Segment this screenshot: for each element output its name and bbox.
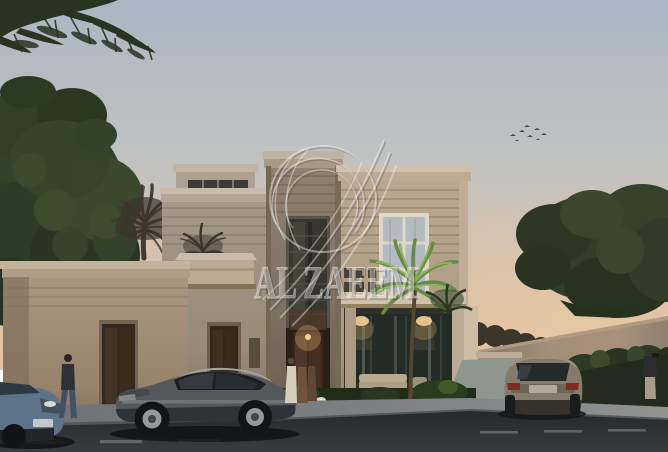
- svg-text:AL ZAEEM: AL ZAEEM: [254, 257, 417, 309]
